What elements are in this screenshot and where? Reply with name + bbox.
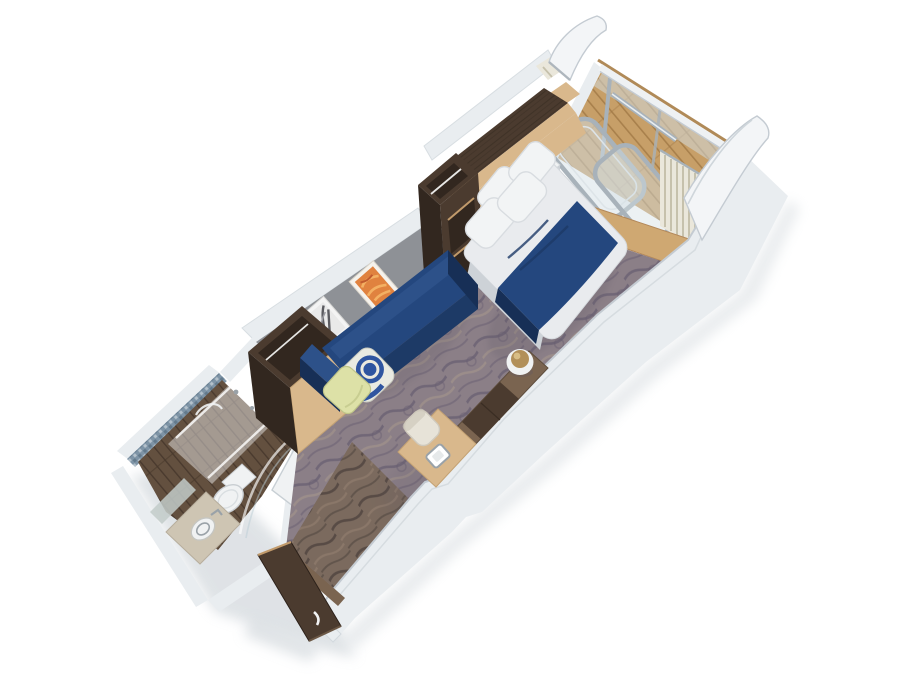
stateroom-svg <box>0 0 900 675</box>
sphere-highlight <box>514 353 521 360</box>
stateroom-rendering <box>0 0 900 675</box>
decor-sphere <box>507 349 534 377</box>
shower-head-icon <box>234 390 239 395</box>
sphere-gold <box>511 350 529 368</box>
shower-control-icon <box>250 406 254 410</box>
